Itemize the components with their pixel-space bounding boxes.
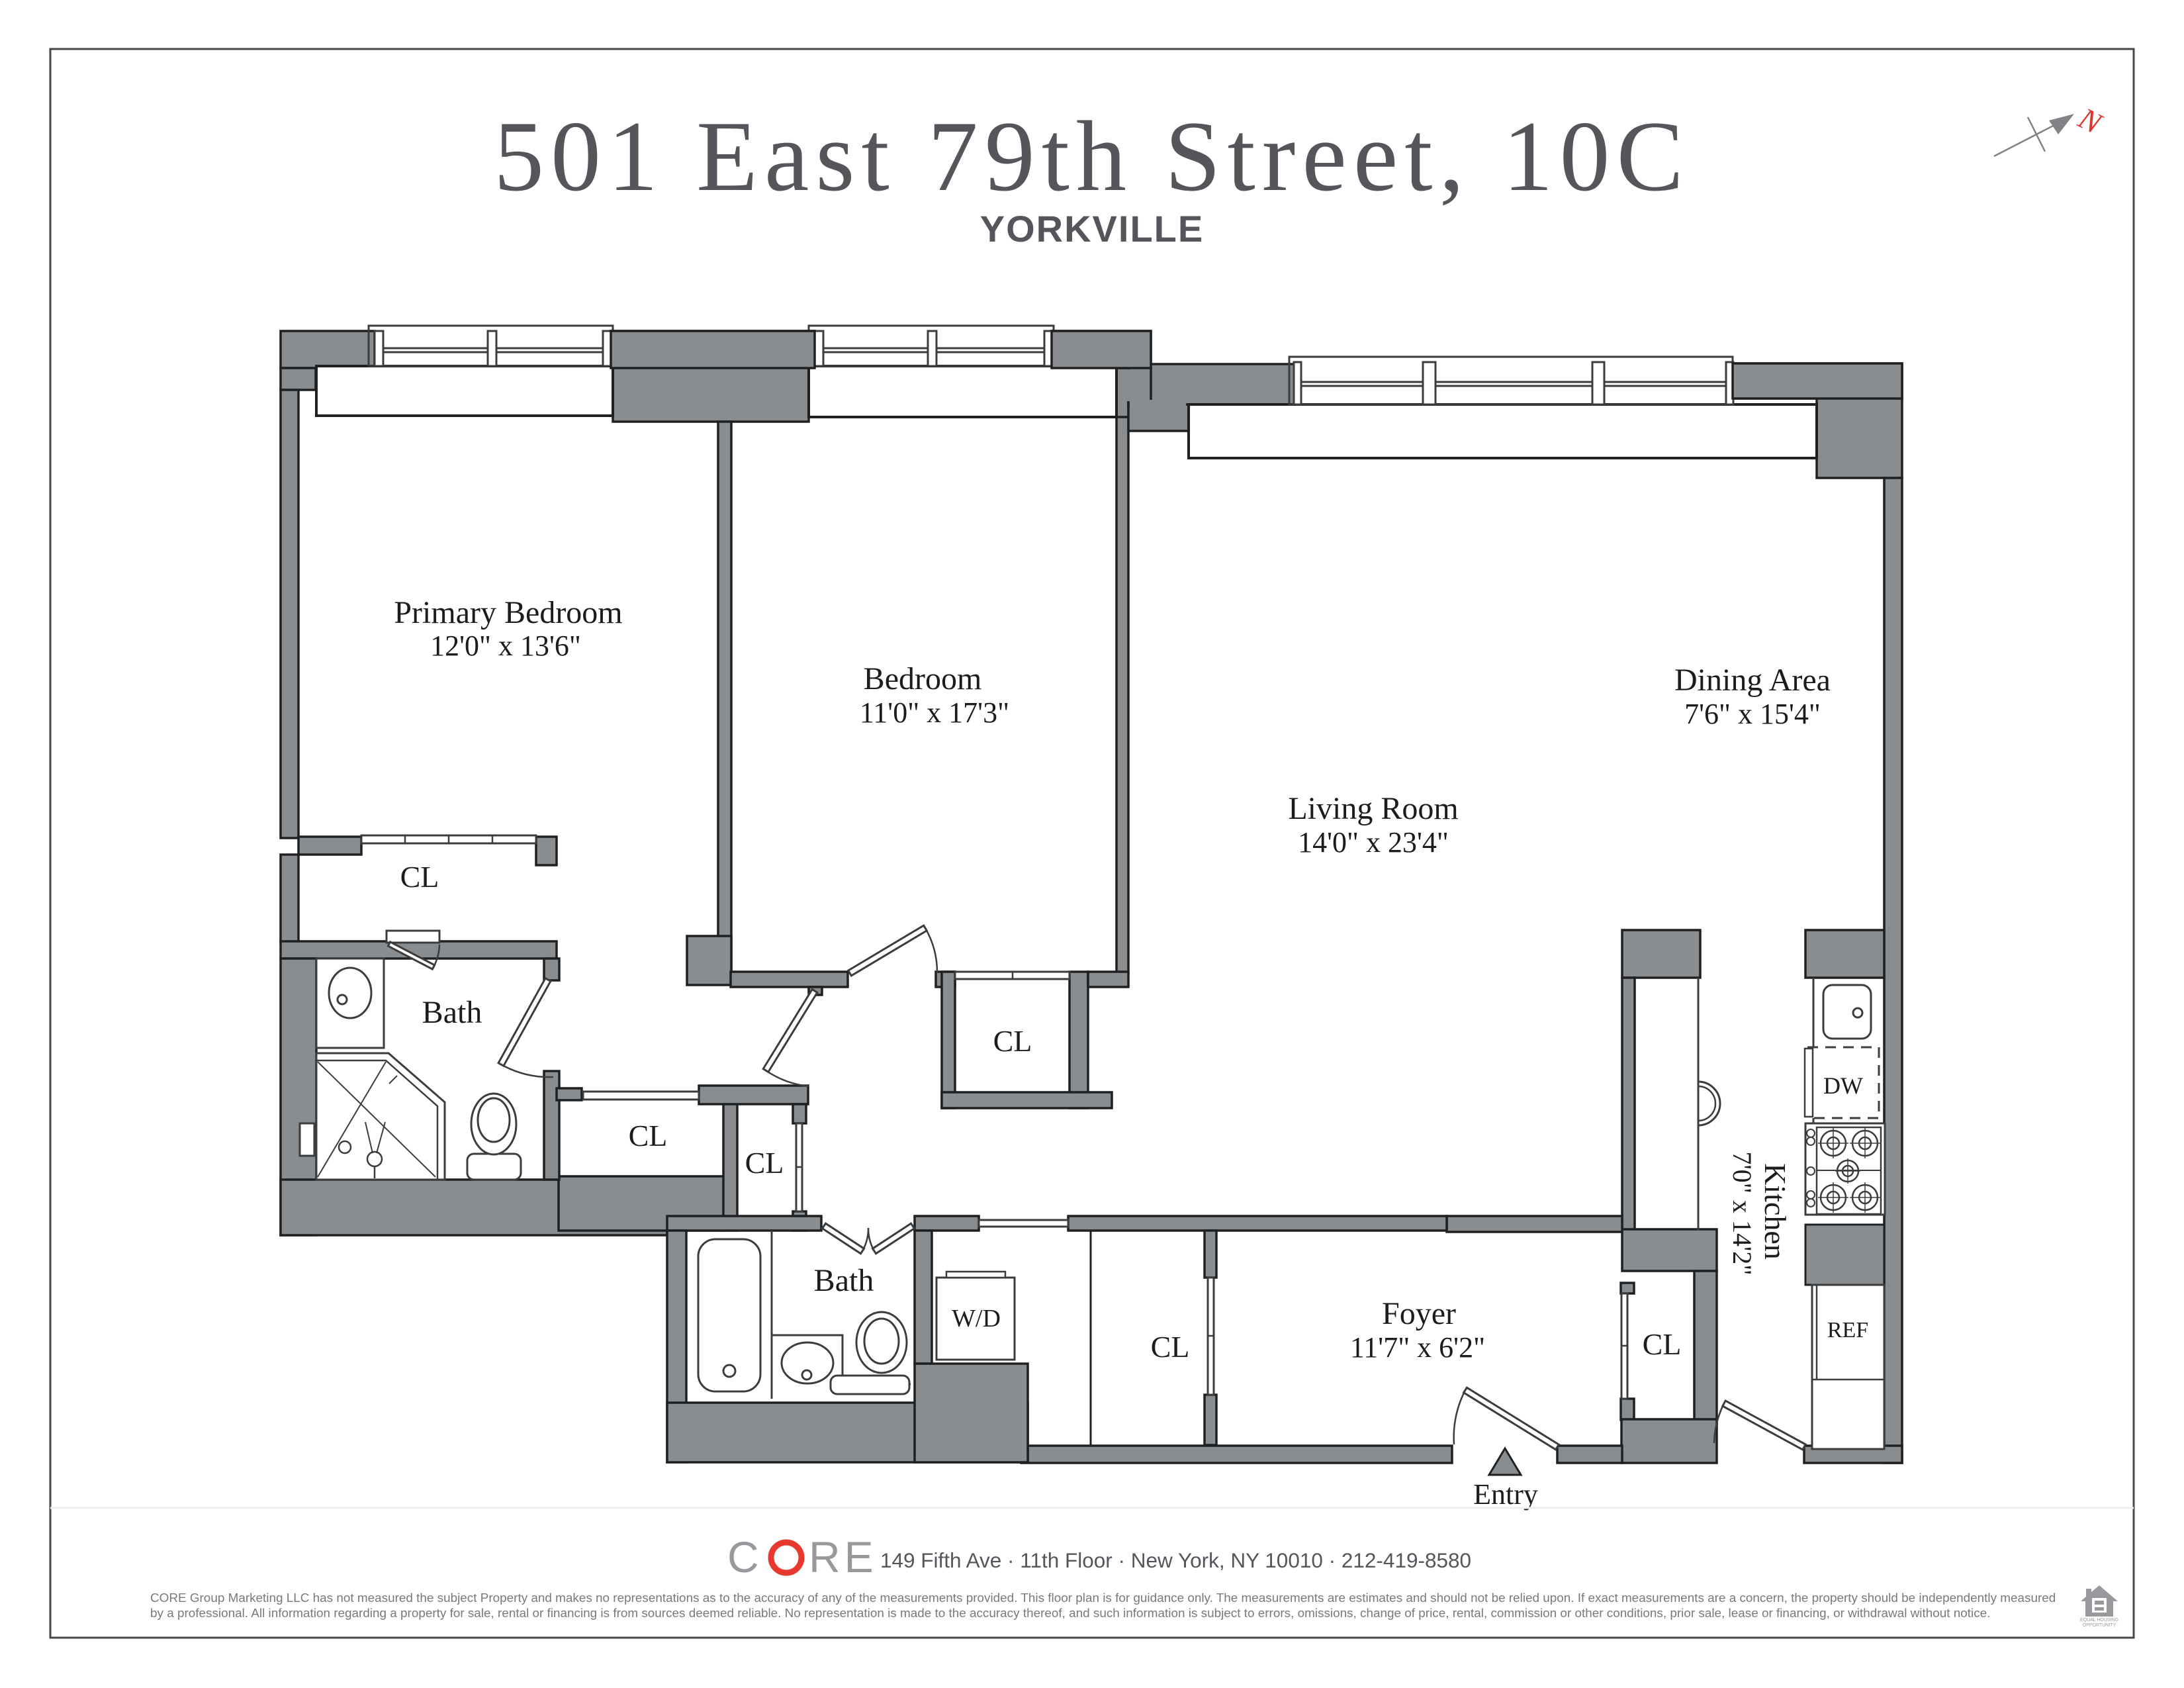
svg-text:Living Room: Living Room	[1288, 791, 1458, 826]
svg-text:CL: CL	[400, 860, 439, 894]
svg-text:CL: CL	[629, 1119, 668, 1152]
svg-text:Bath: Bath	[814, 1263, 874, 1298]
svg-text:by a professional. All informa: by a professional. All information regar…	[150, 1607, 1990, 1620]
svg-text:RE: RE	[809, 1532, 878, 1581]
svg-text:REF: REF	[1827, 1318, 1868, 1342]
svg-text:12'0" x 13'6": 12'0" x 13'6"	[430, 630, 581, 662]
svg-text:Primary Bedroom: Primary Bedroom	[394, 595, 622, 630]
svg-text:OPPORTUNITY: OPPORTUNITY	[2083, 1623, 2116, 1628]
svg-text:Bedroom: Bedroom	[864, 661, 982, 696]
svg-text:Kitchen: Kitchen	[1758, 1163, 1792, 1260]
svg-text:W/D: W/D	[952, 1305, 1001, 1333]
svg-text:C: C	[727, 1532, 763, 1581]
svg-text:CL: CL	[993, 1024, 1032, 1058]
svg-text:DW: DW	[1823, 1072, 1863, 1099]
svg-text:Dining Area: Dining Area	[1674, 663, 1831, 698]
svg-text:7'0" x 14'2": 7'0" x 14'2"	[1727, 1151, 1757, 1275]
svg-text:Entry: Entry	[1473, 1478, 1538, 1511]
svg-text:14'0" x 23'4": 14'0" x 23'4"	[1298, 826, 1449, 859]
svg-text:EQUAL HOUSING: EQUAL HOUSING	[2080, 1618, 2118, 1622]
svg-text:11'7" x 6'2": 11'7" x 6'2"	[1350, 1331, 1485, 1364]
svg-text:CL: CL	[1151, 1330, 1190, 1364]
svg-text:YORKVILLE: YORKVILLE	[980, 208, 1204, 250]
svg-text:11'0" x 17'3": 11'0" x 17'3"	[860, 696, 1009, 729]
svg-text:CORE Group Marketing LLC has n: CORE Group Marketing LLC has not measure…	[150, 1591, 2056, 1605]
svg-text:Foyer: Foyer	[1382, 1296, 1456, 1331]
svg-text:CL: CL	[1643, 1327, 1682, 1361]
svg-text:501 East 79th Street, 10C: 501 East 79th Street, 10C	[494, 101, 1690, 212]
svg-text:149 Fifth Ave · 11th Floor · N: 149 Fifth Ave · 11th Floor · New York, N…	[880, 1548, 1471, 1572]
svg-text:Bath: Bath	[422, 995, 482, 1030]
svg-text:7'6" x 15'4": 7'6" x 15'4"	[1684, 698, 1821, 730]
svg-text:CL: CL	[745, 1146, 784, 1180]
